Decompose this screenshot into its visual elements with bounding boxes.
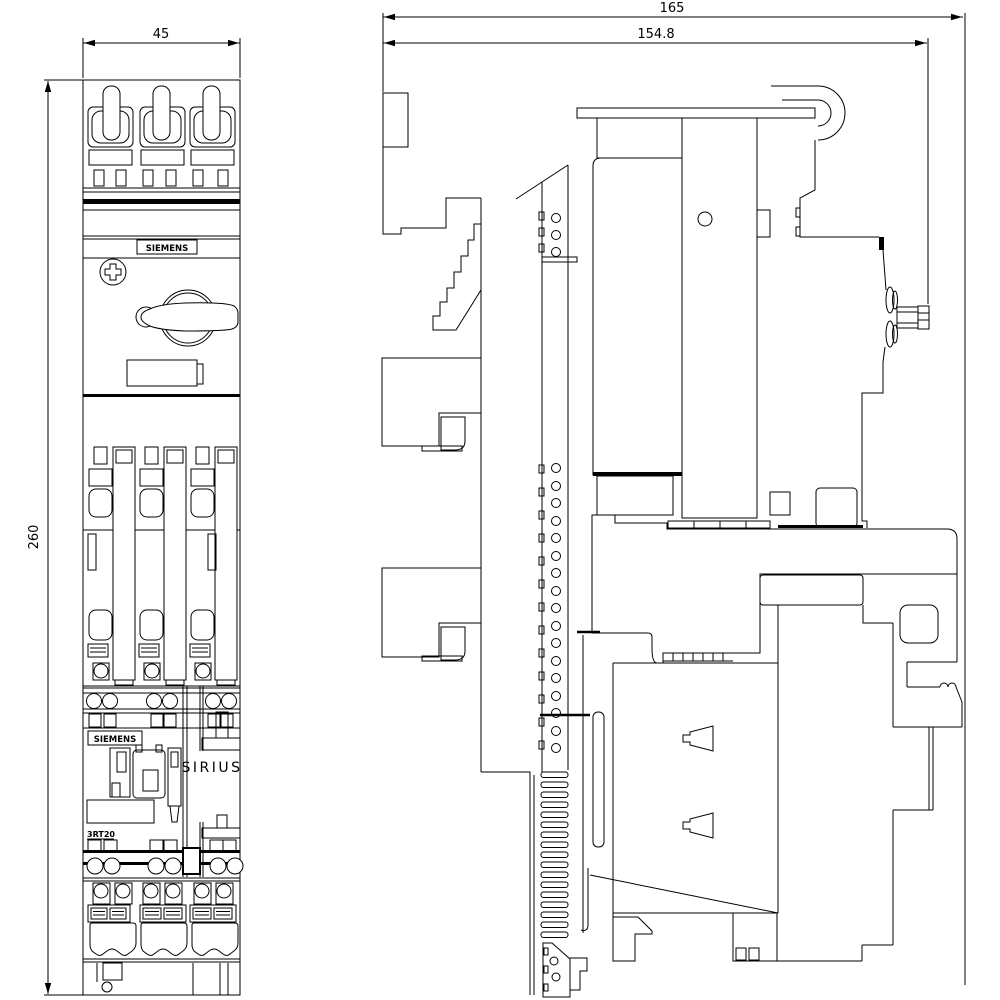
rail-clamp-foot [543,943,587,997]
brand-label-top: SIEMENS [137,240,197,254]
dim-front-height-text: 260 [27,525,42,550]
coil-funnel-upper [683,726,713,751]
dim-front-width: 45 [83,27,240,78]
dim-front-height: 260 [27,80,83,995]
brand-label-bottom: SIEMENS [88,731,142,745]
dim-side-depth-overall-text: 165 [660,1,685,16]
dimension-drawing-page: SIEMENS [0,0,1000,1000]
side-view: 165 154.8 [382,1,965,997]
brand-label-top-text: SIEMENS [146,244,189,254]
separator-line [83,394,240,397]
mounting-plate-profile [382,93,534,995]
front-face-profile [862,539,962,961]
dim-side-depth-overall: 165 [383,1,965,985]
coil-funnel-lower [683,813,713,838]
technical-drawing: SIEMENS [0,0,1000,1000]
spring-comb [541,772,568,938]
type-label-text: 3RT20 [87,830,115,839]
lower-body [577,347,957,961]
upper-body [577,86,886,527]
brand-label-bottom-text: SIEMENS [94,735,137,745]
family-label-text: SIRIUS [181,760,242,776]
din-hook-inner [818,100,831,126]
clip-lever [593,712,604,847]
dim-side-depth-body-text: 154.8 [637,27,674,42]
din-rail-strip [516,165,604,997]
dim-front-width-text: 45 [153,27,170,42]
handle-shaft [886,287,929,347]
housing-hole [698,212,712,226]
front-view: SIEMENS [27,27,243,995]
clip-spring [581,868,588,930]
dim-side-depth-body: 154.8 [383,27,928,304]
teeth-row [663,653,733,661]
